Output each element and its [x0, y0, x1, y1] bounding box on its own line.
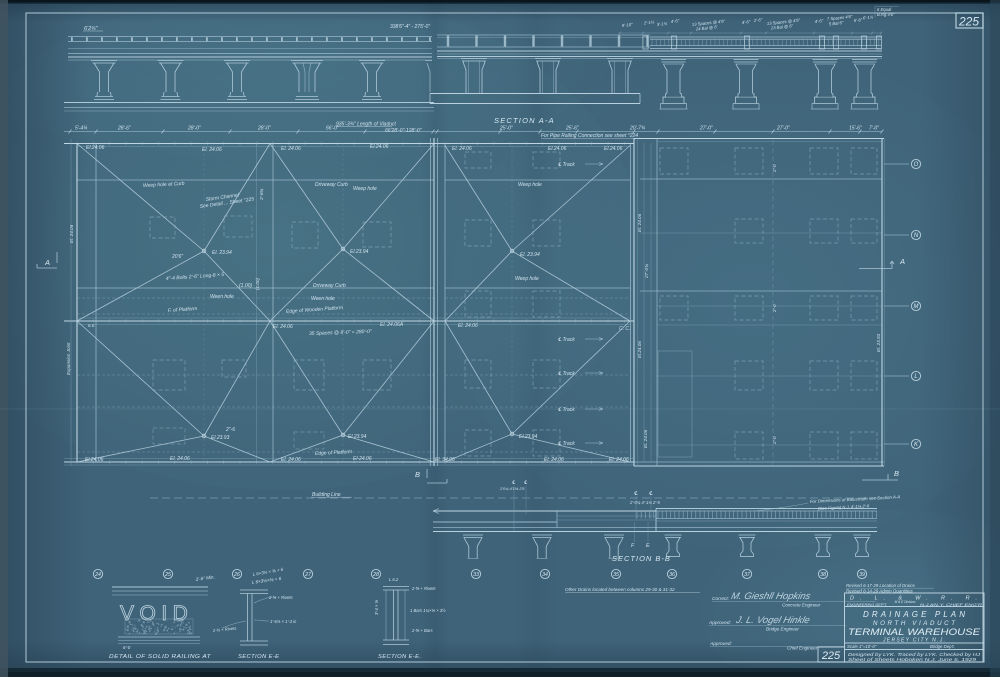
svg-text:For Pipe Railing Connection s: For Pipe Railing Connection see sheet °2… — [541, 133, 638, 139]
svg-text:20'-7¾: 20'-7¾ — [629, 126, 645, 132]
svg-text:Correct:: Correct: — [712, 596, 730, 602]
svg-text:Ween hole: Ween hole — [210, 294, 234, 300]
svg-text:VOID: VOID — [120, 602, 193, 625]
svg-text:6.6: 6.6 — [88, 323, 95, 328]
svg-text:℄ Track: ℄ Track — [558, 162, 575, 168]
svg-text:24: 24 — [94, 572, 101, 578]
svg-text:El. 23.93: El. 23.93 — [876, 333, 881, 352]
svg-text:Scale 1"=10'-0": Scale 1"=10'-0" — [847, 644, 877, 649]
svg-text:SECTION E-E: SECTION E-E — [238, 654, 279, 660]
svg-text:SECTION B-B: SECTION B-B — [612, 554, 671, 563]
svg-text:SECTION E-E.: SECTION E-E. — [378, 654, 421, 660]
svg-text:El.24.06: El.24.06 — [637, 341, 642, 358]
svg-text:L: L — [914, 374, 917, 380]
svg-text:2'-0: 2'-0 — [772, 436, 777, 445]
svg-text:27: 27 — [304, 572, 312, 578]
svg-text:Bridge Engineer: Bridge Engineer — [766, 627, 799, 632]
svg-text:N.J.&N.Y. CHIEF ENG'R: N.J.&N.Y. CHIEF ENG'R — [920, 602, 982, 607]
svg-text:M & E Division: M & E Division — [895, 600, 916, 604]
svg-text:25: 25 — [164, 572, 171, 578]
svg-text:El. 24.06: El. 24.06 — [637, 213, 642, 232]
svg-text:5'-4¼: 5'-4¼ — [75, 126, 87, 132]
svg-text:El. 24.06: El. 24.06 — [281, 146, 301, 152]
svg-text:1 Bars 1¼×⅜ × 3½: 1 Bars 1¼×⅜ × 3½ — [410, 608, 446, 613]
svg-text:2'-0: 2'-0 — [772, 164, 777, 173]
svg-text:3'-4 × ⅜: 3'-4 × ⅜ — [374, 599, 379, 615]
svg-text:28'-6": 28'-6" — [117, 126, 131, 132]
svg-text:225: 225 — [958, 15, 979, 29]
svg-text:El.23.94: El.23.94 — [348, 434, 367, 440]
svg-text:Driveway Curb: Driveway Curb — [315, 182, 348, 188]
svg-text:M: M — [914, 304, 919, 310]
svg-text:Weep hole: Weep hole — [518, 182, 542, 188]
svg-text:TERMINAL WAREHOUSE: TERMINAL WAREHOUSE — [848, 627, 981, 637]
svg-text:SECTION A-A: SECTION A-A — [494, 116, 555, 125]
svg-text:El. 24.06A: El. 24.06A — [380, 322, 404, 328]
svg-text:2'0¼ 4'1⅛ 2'5: 2'0¼ 4'1⅛ 2'5 — [499, 486, 525, 491]
svg-text:DETAIL OF SOLID RAILING AT: DETAIL OF SOLID RAILING AT — [109, 654, 211, 660]
svg-text:27'-0": 27'-0" — [776, 126, 790, 132]
svg-text:38: 38 — [820, 572, 826, 578]
svg-text:El. 24.06: El. 24.06 — [458, 323, 478, 329]
svg-text:Bridge Dep't.: Bridge Dep't. — [930, 644, 955, 649]
svg-text:El.24.06: El.24.06 — [370, 144, 389, 150]
svg-text:2-⅝ + Rivets: 2-⅝ + Rivets — [411, 586, 437, 591]
svg-text:2-⅝ + Rivets: 2-⅝ + Rivets — [268, 595, 294, 600]
svg-text:338'6"-4" - 275'-0": 338'6"-4" - 275'-0" — [390, 24, 430, 30]
svg-text:4'-6": 4'-6" — [671, 18, 680, 24]
svg-text:35: 35 — [613, 572, 619, 578]
svg-text:225: 225 — [821, 650, 841, 662]
svg-text:O: O — [914, 162, 919, 168]
svg-text:El.23.93: El.23.93 — [211, 435, 230, 441]
svg-text:El-24.06: El-24.06 — [353, 456, 372, 462]
svg-text:El. 24.06: El. 24.06 — [273, 324, 293, 330]
svg-text:Weep hole: Weep hole — [515, 276, 539, 282]
svg-text:Ween hole: Ween hole — [311, 296, 335, 302]
svg-text:El. 23.94: El. 23.94 — [520, 252, 540, 258]
svg-text:39: 39 — [859, 572, 865, 578]
svg-text:El. 24.06: El. 24.06 — [544, 457, 564, 463]
svg-text:℄ Track: ℄ Track — [558, 371, 575, 377]
svg-text:El.24.06: El.24.06 — [85, 457, 104, 463]
svg-text:2'-0¼ 4'-1⅛ 2'-5: 2'-0¼ 4'-1⅛ 2'-5 — [629, 500, 661, 505]
svg-text:El.23.94: El.23.94 — [519, 434, 538, 440]
svg-text:El. 24.06: El. 24.06 — [69, 224, 74, 243]
svg-text:El.24.06: El.24.06 — [604, 146, 623, 152]
svg-text:C. C.: C. C. — [619, 326, 630, 332]
svg-text:2'-0: 2'-0 — [772, 304, 777, 313]
svg-text:4'-6": 4'-6" — [742, 19, 751, 25]
svg-text:7'-0": 7'-0" — [869, 126, 879, 132]
svg-text:28: 28 — [372, 572, 379, 578]
svg-text:℄: ℄ — [634, 490, 638, 497]
svg-text:3'-8¾: 3'-8¾ — [259, 188, 264, 200]
svg-text:E: E — [646, 543, 650, 549]
svg-text:33: 33 — [473, 572, 479, 578]
svg-text:36: 36 — [669, 572, 675, 578]
svg-text:Weep hole: Weep hole — [353, 186, 377, 192]
svg-text:℄ Track: ℄ Track — [558, 337, 575, 343]
svg-text:B: B — [894, 469, 899, 478]
svg-text:El. 24.06: El. 24.06 — [452, 146, 472, 152]
svg-text:25'-6": 25'-6" — [565, 126, 579, 132]
svg-text:1'-6⅞ × 1'-3 in: 1'-6⅞ × 1'-3 in — [270, 619, 297, 624]
svg-text:Other Drains located between c: Other Drains located between columns 29-… — [565, 587, 675, 592]
svg-text:Sheet of Sheets Hoboken: Sheet of Sheets Hoboken N.J. June 6. 192… — [848, 657, 977, 662]
svg-text:66'28'-0"-128'-0": 66'28'-0"-128'-0" — [385, 128, 422, 134]
svg-text:28'-0": 28'-0" — [187, 126, 201, 132]
svg-text:Approved:: Approved: — [708, 620, 732, 626]
svg-text:(1.00): (1.00) — [255, 278, 260, 290]
svg-text:El. 24.06: El. 24.06 — [643, 429, 648, 448]
svg-text:℄ Track: ℄ Track — [558, 407, 575, 413]
svg-text:M. Gieshll Hopkins: M. Gieshll Hopkins — [730, 591, 812, 602]
svg-text:N: N — [914, 233, 919, 239]
svg-text:34: 34 — [542, 572, 548, 578]
svg-text:6'-8": 6'-8" — [854, 17, 863, 23]
svg-text:B: B — [415, 470, 420, 479]
svg-text:Expansion Joint: Expansion Joint — [66, 342, 71, 375]
svg-text:4'-6": 4'-6" — [815, 18, 824, 24]
svg-text:Chief Engineer: Chief Engineer — [787, 646, 818, 651]
svg-text:27'-0¾: 27'-0¾ — [644, 264, 649, 279]
svg-text:El.24.06: El.24.06 — [86, 145, 105, 151]
svg-text:El. 23.94: El. 23.94 — [212, 250, 232, 256]
svg-text:27'-0": 27'-0" — [699, 126, 713, 132]
svg-text:A: A — [899, 257, 905, 266]
svg-text:El. 24.06: El. 24.06 — [609, 457, 629, 463]
svg-text:Approved:: Approved: — [709, 641, 733, 647]
svg-text:28'-0": 28'-0" — [257, 126, 271, 132]
svg-text:Driveway Curb: Driveway Curb — [313, 283, 346, 289]
svg-text:El. 24.06: El. 24.06 — [281, 457, 301, 463]
svg-text:B.Rg 4'6": B.Rg 4'6" — [877, 12, 895, 17]
svg-text:El.23.94: El.23.94 — [350, 249, 369, 255]
svg-text:El. 24.06: El. 24.06 — [170, 456, 190, 462]
svg-text:El. 24.06: El. 24.06 — [202, 147, 222, 153]
svg-text:El.24.06: El.24.06 — [548, 146, 567, 152]
svg-text:2"-6: 2"-6 — [225, 427, 235, 433]
svg-text:L 6.2: L 6.2 — [389, 577, 399, 582]
svg-text:Concrete Engineer: Concrete Engineer — [782, 603, 821, 608]
svg-text:℄ Track: ℄ Track — [558, 441, 575, 447]
svg-text:Revised 6-17-29 Location of D: Revised 6-17-29 Location of Drains — [846, 583, 916, 588]
svg-text:15'-6": 15'-6" — [849, 126, 862, 132]
svg-text:℄: ℄ — [649, 490, 653, 497]
svg-text:6'-0: 6'-0 — [123, 645, 131, 650]
svg-text:20'6": 20'6" — [171, 254, 183, 260]
svg-text:26: 26 — [233, 572, 240, 578]
svg-text:A: A — [44, 258, 50, 267]
svg-text:2'-6": 2'-6" — [753, 17, 763, 23]
svg-text:(1.00): (1.00) — [239, 283, 252, 289]
svg-text:25'-0": 25'-0" — [499, 126, 513, 132]
svg-text:J. L. Vogel Hinkle: J. L. Vogel Hinkle — [734, 615, 811, 626]
svg-text:2-⅝ + Bars: 2-⅝ + Bars — [411, 628, 434, 633]
svg-text:ENGINEERING DEP'T.: ENGINEERING DEP'T. — [847, 602, 887, 607]
svg-text:JERSEY CITY N.J.: JERSEY CITY N.J. — [882, 638, 945, 644]
